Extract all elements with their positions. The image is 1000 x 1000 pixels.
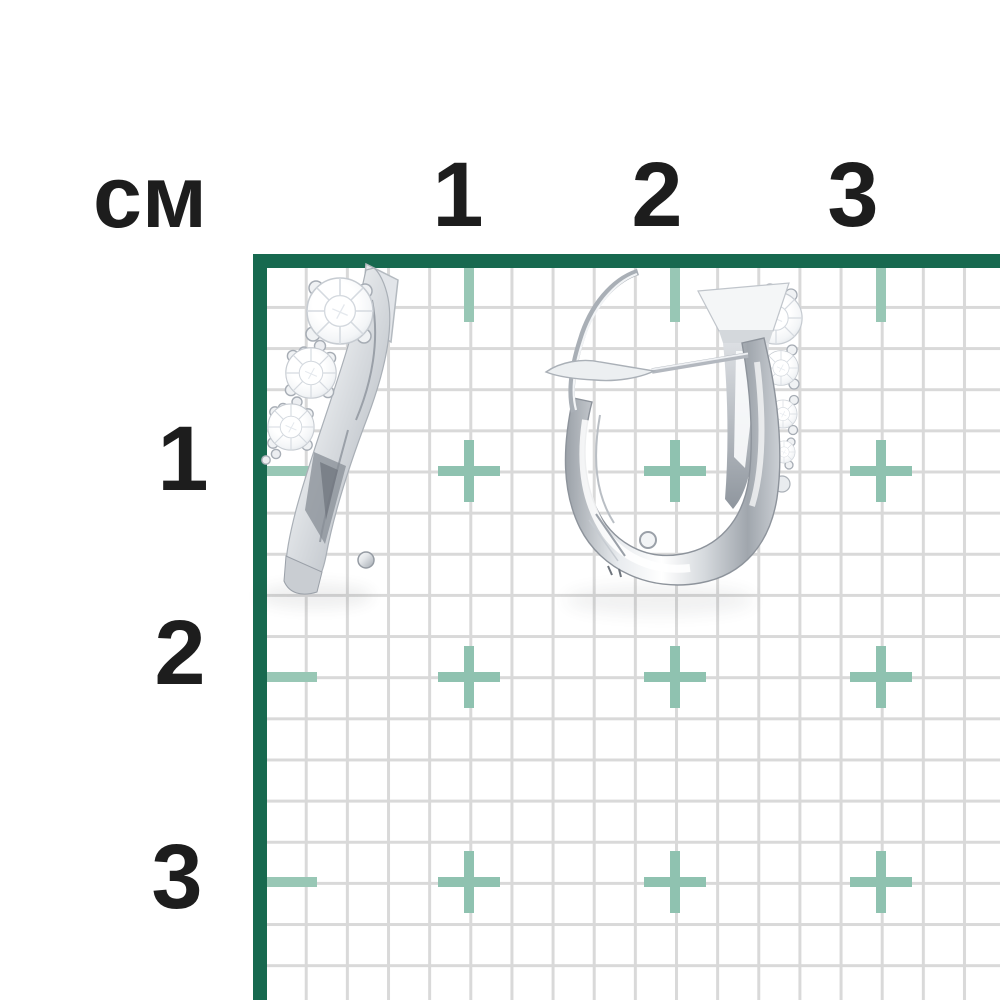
ruler-top-label-3: 3 [827,149,878,241]
grid-frame-top [253,254,1000,268]
ruler-side-label-3: 3 [151,831,202,923]
diamond-small [268,404,314,450]
ruler-side-label-2: 2 [154,607,205,699]
ruler-unit-label: см [93,153,207,241]
grid-frame-left [253,254,267,1000]
diamond-medium [285,348,336,398]
clasp-knob [358,552,374,568]
size-chart: см 1 2 3 1 2 3 [0,0,1000,1000]
ruler-top-label-1: 1 [432,149,483,241]
hinge-rivet [640,532,656,548]
ruler-top-label-2: 2 [631,149,682,241]
ruler-side-label-1: 1 [157,413,208,505]
soft-shadow [565,585,755,615]
diamond-large [306,278,373,344]
